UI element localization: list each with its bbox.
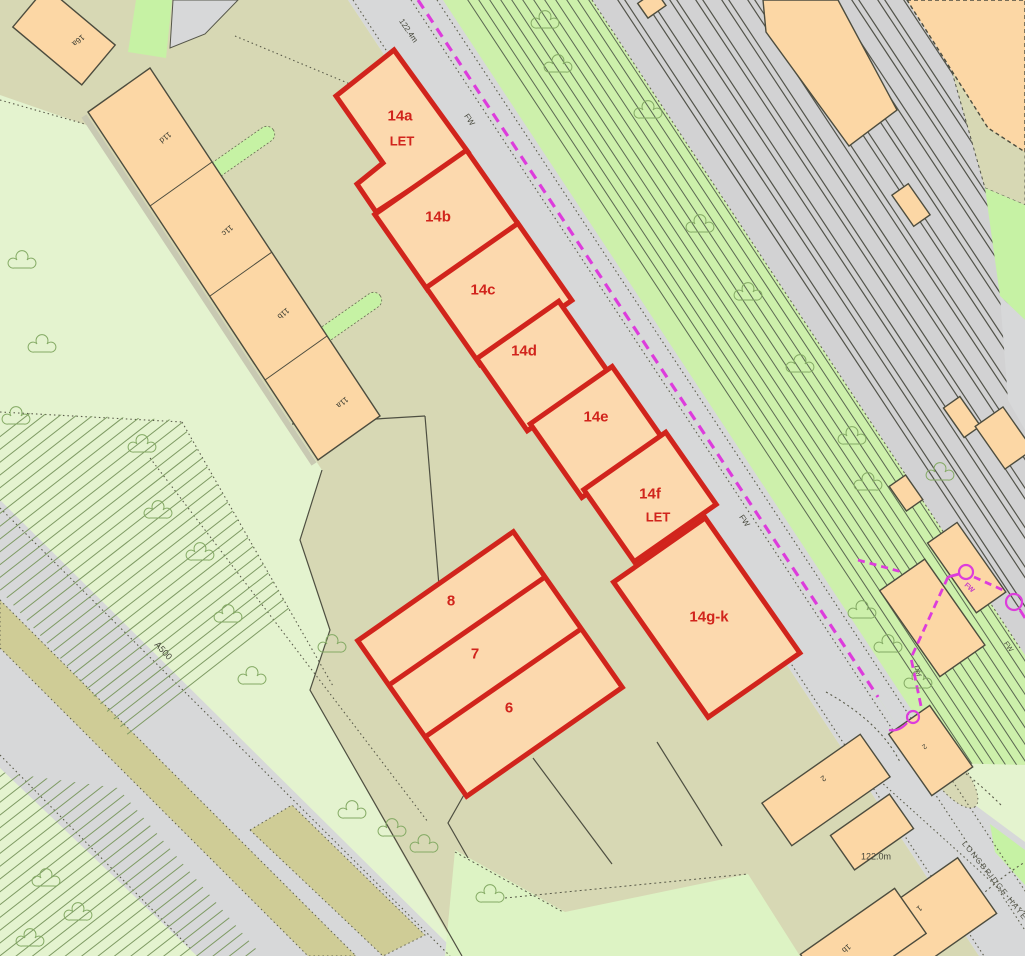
site-plan-map: 14a LET 14b 14c 14d 14e 14f LET 14g-k 8 … [0,0,1025,956]
tree-icon [338,801,366,818]
tree-icon [8,251,36,268]
tree-icon [2,407,30,424]
tree-icon [64,903,92,920]
tree-icon [144,501,172,518]
tree-icon [128,435,156,452]
tree-icon [32,869,60,886]
tree-icon [214,605,242,622]
tree-icon [238,667,266,684]
tree-icon [28,335,56,352]
map-canvas [0,0,1025,956]
